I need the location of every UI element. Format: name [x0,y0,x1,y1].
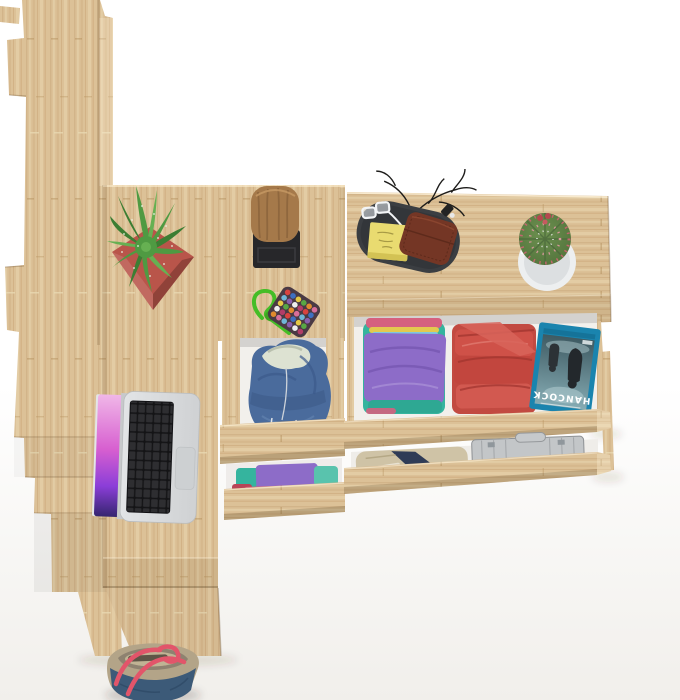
laptop-trackpad [175,447,195,490]
tote-bag [107,643,199,700]
scene-top-view-furniture: HANCOCK [0,0,680,700]
briefcase-handle [515,432,545,442]
cork-stool [251,186,300,268]
render-canvas: HANCOCK [0,0,680,700]
folded-clothes-purple-stack [363,318,446,414]
pedestal-drawer1-front [220,418,345,464]
laptop-keyboard [127,401,173,512]
folded-clothes-red-stack [452,322,536,414]
desk-front-edge [103,558,218,588]
bluray: HANCOCK [529,322,601,416]
drawer-pedestal [220,338,345,520]
laptop [92,390,200,524]
